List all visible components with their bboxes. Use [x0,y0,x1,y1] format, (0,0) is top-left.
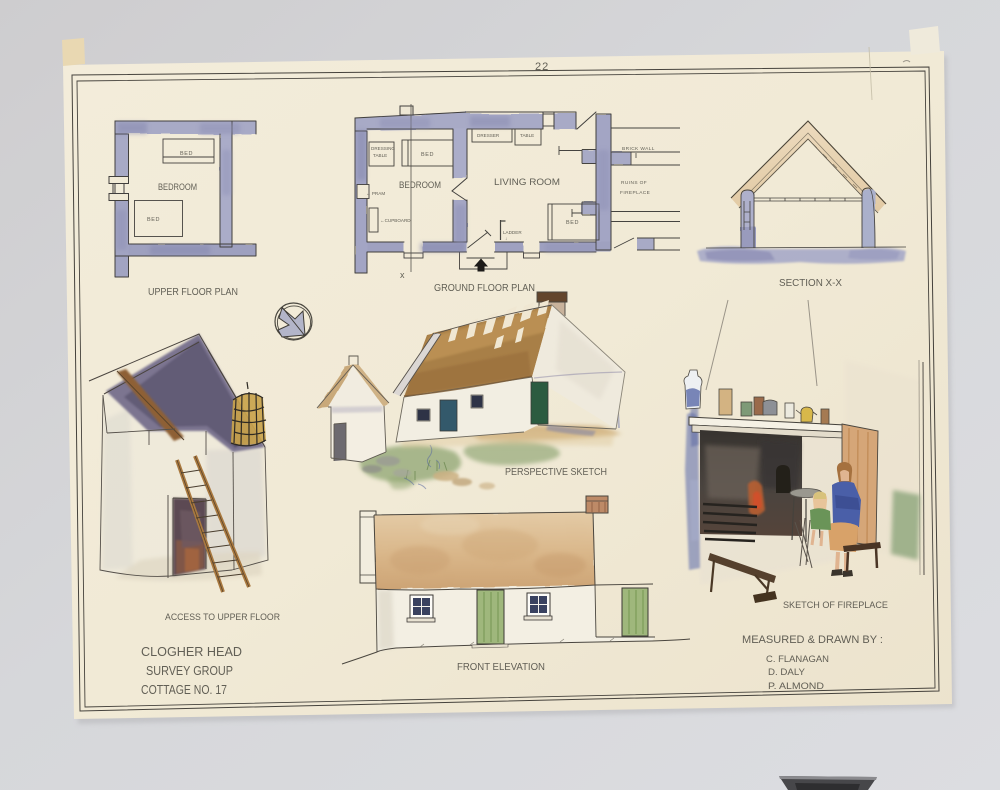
svg-text:DRESSER: DRESSER [477,133,500,138]
svg-text:BEDROOM: BEDROOM [399,180,441,191]
svg-text:DRESSING: DRESSING [371,146,395,151]
svg-text:SKETCH OF FIREPLACE: SKETCH OF FIREPLACE [783,600,888,611]
svg-text:↓: ↓ [505,236,507,241]
svg-text:GROUND FLOOR PLAN: GROUND FLOOR PLAN [434,282,535,294]
svg-text:C. FLANAGAN: C. FLANAGAN [766,654,829,665]
svg-text:BED: BED [147,217,160,223]
svg-text:TABLE: TABLE [520,133,534,138]
svg-text:BED: BED [566,220,579,226]
svg-text:UPPER FLOOR PLAN: UPPER FLOOR PLAN [148,287,238,298]
svg-text:ACCESS TO UPPER FLOOR: ACCESS TO UPPER FLOOR [165,612,280,623]
svg-text:RUINS OF: RUINS OF [621,180,647,186]
svg-text:22: 22 [535,61,549,73]
svg-text:FRONT ELEVATION: FRONT ELEVATION [457,662,545,673]
svg-text:SURVEY GROUP: SURVEY GROUP [146,663,233,678]
svg-text:BRICK WALL: BRICK WALL [622,146,655,152]
svg-text:SECTION X-X: SECTION X-X [779,278,842,289]
svg-text:LIVING ROOM: LIVING ROOM [494,177,560,188]
svg-text:BED: BED [421,152,434,158]
svg-text:← PRAM: ← PRAM [366,191,385,196]
svg-text:LADDER: LADDER [503,230,522,235]
svg-text:MEASURED & DRAWN BY :: MEASURED & DRAWN BY : [742,634,883,646]
svg-text:P. ALMOND: P. ALMOND [768,681,824,692]
svg-text:COTTAGE NO. 17: COTTAGE NO. 17 [141,682,227,697]
svg-text:D. DALY: D. DALY [768,667,806,678]
svg-text:PERSPECTIVE SKETCH: PERSPECTIVE SKETCH [505,467,607,478]
svg-text:BEDROOM: BEDROOM [158,182,197,193]
svg-text:BED: BED [180,151,193,157]
svg-text:CLOGHER HEAD: CLOGHER HEAD [141,644,242,659]
svg-text:FIREPLACE: FIREPLACE [620,190,650,196]
svg-text:x: x [400,270,405,280]
svg-text:TABLE: TABLE [373,153,387,158]
svg-text:←CUPBOARD: ←CUPBOARD [380,218,411,223]
